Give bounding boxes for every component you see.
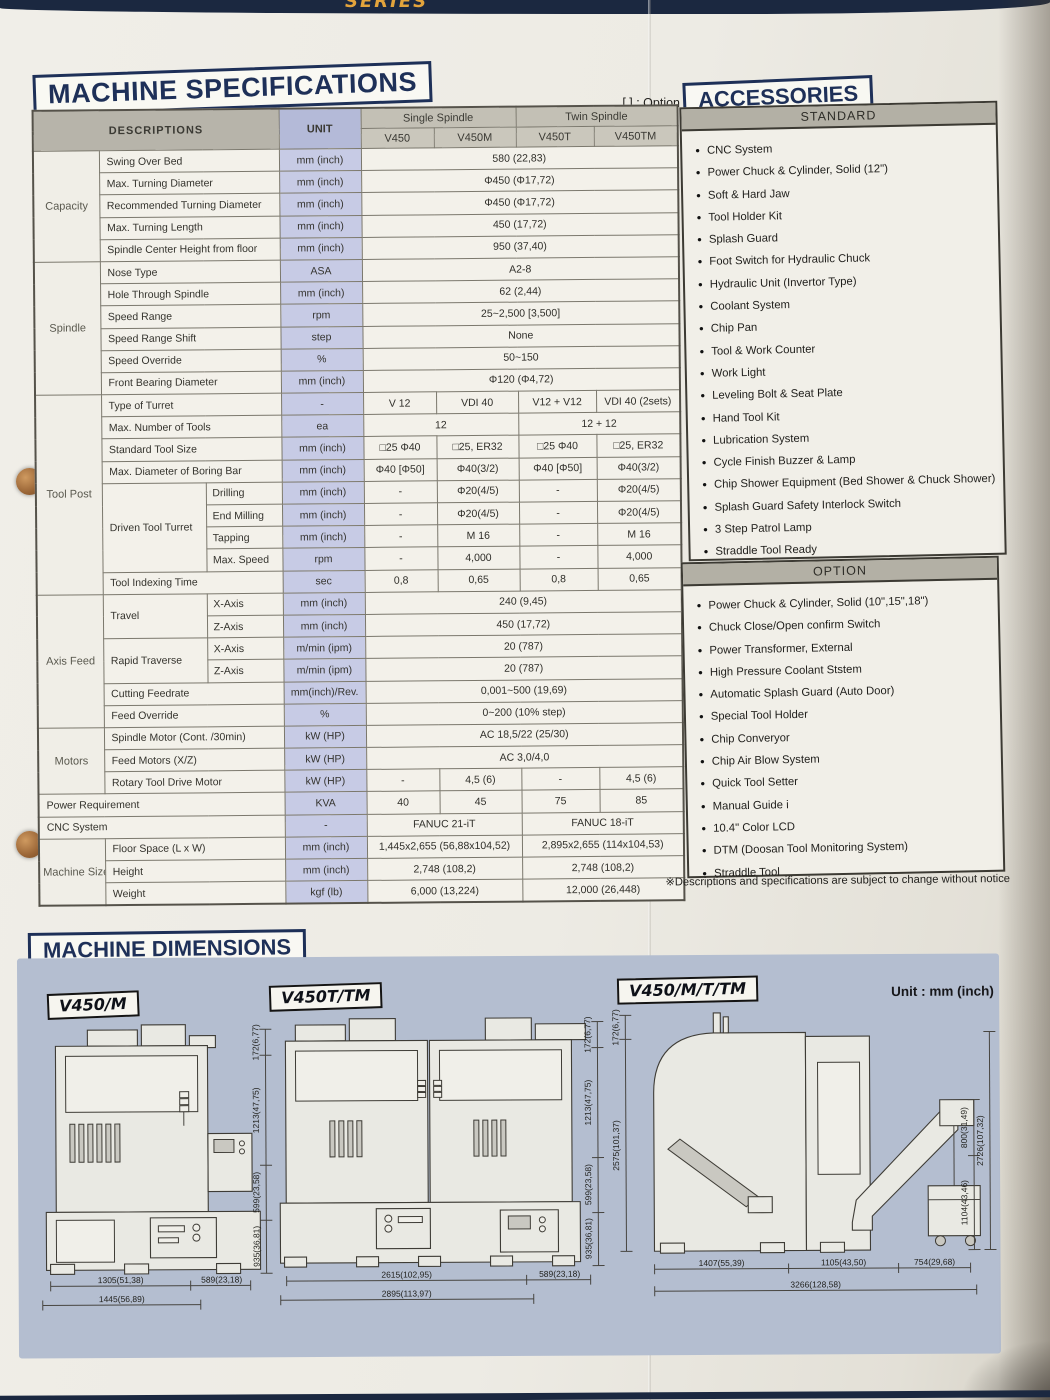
dimension-label: 800(31,49) xyxy=(959,1107,969,1148)
description-cell: Front Bearing Diameter xyxy=(101,371,281,395)
dimension-label: 2895(113,97) xyxy=(382,1288,432,1298)
dimension-label: 2575(101,37) xyxy=(611,1120,621,1171)
dimension-label: 935(36,81) xyxy=(251,1226,261,1267)
unit-cell: mm (inch) xyxy=(279,193,361,216)
dimension-label: 2615(102,95) xyxy=(381,1269,432,1279)
value-cell: - xyxy=(364,525,437,548)
description-cell: Travel xyxy=(103,594,207,639)
value-cell: - xyxy=(364,503,437,526)
value-cell: FANUC 18-iT xyxy=(522,811,684,835)
footnote: ※Descriptions and specifications are sub… xyxy=(610,872,1010,889)
unit-cell: mm (inch) xyxy=(279,171,361,194)
unit-cell: mm (inch) xyxy=(282,481,364,504)
value-cell: 0,65 xyxy=(438,569,520,592)
brochure-page: SERIES MACHINE SPECIFICATIONS [ ] : Opti… xyxy=(0,0,1050,1400)
description-cell: Nose Type xyxy=(100,260,280,284)
bottom-banner xyxy=(0,1390,1050,1400)
value-cell: Φ40(3/2) xyxy=(597,456,681,479)
value-cell: M 16 xyxy=(437,524,519,547)
value-cell: A2-8 xyxy=(362,257,679,282)
accessory-item-label: CNC System xyxy=(707,143,773,156)
accessory-item-label: High Pressure Coolant Ststem xyxy=(710,663,862,678)
bullet-icon: ● xyxy=(703,503,708,512)
description-cell: Hole Through Spindle xyxy=(100,282,280,306)
accessory-item-label: Automatic Splash Guard (Auto Door) xyxy=(710,685,894,701)
dimension-label: 172(6,77) xyxy=(582,1016,592,1053)
value-cell: □25 Φ40 xyxy=(363,436,436,459)
bullet-icon: ● xyxy=(700,757,705,766)
accessory-item-label: Tool Holder Kit xyxy=(708,210,782,224)
description-cell: Recommended Turning Diameter xyxy=(99,194,279,218)
dimension-label: 1213(47,75) xyxy=(583,1079,593,1125)
bullet-icon: ● xyxy=(698,302,703,311)
accessory-item-label: Cycle Finish Buzzer & Lamp xyxy=(713,454,855,469)
bullet-icon: ● xyxy=(697,646,702,655)
value-cell: - xyxy=(519,501,597,524)
unit-cell: % xyxy=(281,348,363,371)
machine-diagram-v450m: 172(6,77) 1213(47,75) 599(23,58) 935(36,… xyxy=(29,1015,281,1328)
bullet-icon: ● xyxy=(701,824,706,833)
accessory-item-label: Quick Tool Setter xyxy=(712,776,798,790)
bullet-icon: ● xyxy=(701,802,706,811)
unit-cell: mm (inch) xyxy=(285,858,367,881)
value-cell: 45 xyxy=(439,791,521,814)
unit-cell: kW (HP) xyxy=(284,770,366,793)
value-cell: 4,000 xyxy=(597,545,681,568)
column-header-single-spindle: Single Spindle xyxy=(361,107,516,129)
sub-description-cell: Drilling xyxy=(206,482,282,505)
value-cell: FANUC 21-iT xyxy=(367,813,522,837)
unit-cell: KVA xyxy=(285,792,367,815)
accessory-item-label: Power Chuck & Cylinder, Solid (12") xyxy=(707,163,888,179)
accessory-item-label: Soft & Hard Jaw xyxy=(708,188,790,202)
value-cell: Φ20(4/5) xyxy=(437,480,519,503)
option-accessories-list: ●Power Chuck & Cylinder, Solid (10",15",… xyxy=(683,589,1003,885)
value-cell: 1,445x2,655 (56,88x104,52) xyxy=(367,835,522,859)
bullet-icon: ● xyxy=(696,213,701,222)
description-cell: Weight xyxy=(105,881,285,905)
description-cell: Feed Override xyxy=(104,704,284,728)
dimension-label: 2726(107,32) xyxy=(975,1115,985,1166)
accessory-item-label: Chip Pan xyxy=(711,322,758,335)
unit-cell: mm (inch) xyxy=(282,526,364,549)
column-header-model: V450M xyxy=(434,127,516,148)
bullet-icon: ● xyxy=(702,480,707,489)
value-cell: 25~2,500 [3,500] xyxy=(362,301,679,326)
value-cell: Φ20(4/5) xyxy=(597,501,681,524)
unit-cell: mm (inch) xyxy=(280,282,362,305)
value-cell: 62 (2,44) xyxy=(362,279,679,304)
bullet-icon: ● xyxy=(698,280,703,289)
description-cell: Rotary Tool Drive Motor xyxy=(104,770,284,794)
value-cell: 240 (9,45) xyxy=(365,589,682,614)
accessory-item-label: Hand Tool Kit xyxy=(713,411,780,424)
accessory-item-label: Chuck Close/Open confirm Switch xyxy=(709,618,881,634)
bullet-icon: ● xyxy=(696,191,701,200)
bullet-icon: ● xyxy=(701,413,706,422)
accessory-item-label: Power Transformer, External xyxy=(709,641,852,656)
unit-cell: kW (HP) xyxy=(284,748,366,771)
value-cell: Φ40 [Φ50] xyxy=(519,457,597,480)
value-cell: □25, ER32 xyxy=(436,436,518,459)
machine-diagram-side-view: 172(6,77) 2575(101,37) 800(31,49) 1104(4… xyxy=(609,999,999,1319)
dimension-label: 1213(47,75) xyxy=(251,1087,261,1133)
bullet-icon: ● xyxy=(695,146,700,155)
description-cell: Spindle Center Height from floor xyxy=(100,238,280,262)
bullet-icon: ● xyxy=(700,391,705,400)
spec-table: DESCRIPTIONSUNITSingle SpindleTwin Spind… xyxy=(32,104,686,907)
bullet-icon: ● xyxy=(700,369,705,378)
sub-description-cell: Z-Axis xyxy=(207,659,283,682)
series-text: SERIES xyxy=(345,0,428,12)
accessory-item-label: Splash Guard xyxy=(709,233,778,246)
description-cell: Driven Tool Turret xyxy=(102,483,207,573)
unit-cell: ea xyxy=(281,415,363,438)
accessory-item-label: Tool & Work Counter xyxy=(711,343,815,357)
accessory-item-label: Chip Shower Equipment (Bed Shower & Chuc… xyxy=(714,473,996,491)
unit-cell: mm(inch)/Rev. xyxy=(284,681,366,704)
value-cell: 450 (17,72) xyxy=(365,612,682,637)
value-cell: 0,8 xyxy=(520,568,598,591)
unit-cell: rpm xyxy=(280,304,362,327)
dimension-label: 599(23,58) xyxy=(583,1164,593,1205)
bullet-icon: ● xyxy=(703,547,708,556)
column-header-model: V450T xyxy=(516,126,594,147)
spec-row: Weightkgf (lb)6,000 (13,224)12,000 (26,4… xyxy=(39,878,684,906)
accessory-item-label: Work Light xyxy=(712,367,766,380)
sub-description-cell: Max. Speed xyxy=(206,549,282,572)
accessory-item-label: Straddle Tool Ready xyxy=(715,544,817,558)
accessory-item-label: Foot Switch for Hydraulic Chuck xyxy=(709,253,870,268)
unit-cell: sec xyxy=(283,570,365,593)
accessory-item-label: Manual Guide i xyxy=(713,799,789,813)
unit-cell: mm (inch) xyxy=(283,592,365,615)
unit-cell: kgf (lb) xyxy=(285,881,367,904)
dimension-label: 589(23,18) xyxy=(201,1274,242,1284)
value-cell: None xyxy=(362,323,679,348)
value-cell: 12 + 12 xyxy=(518,412,680,436)
group-cell: Capacity xyxy=(33,151,100,263)
value-cell: 85 xyxy=(599,789,683,812)
description-cell: Speed Override xyxy=(101,349,281,373)
standard-header: STANDARD xyxy=(681,103,995,132)
bullet-icon: ● xyxy=(699,712,704,721)
dimension-label: 1104(43,46) xyxy=(959,1180,969,1225)
dimension-label: 1445(56,89) xyxy=(99,1294,145,1304)
value-cell: 6,000 (13,224) xyxy=(367,879,522,903)
description-cell: Speed Range xyxy=(100,304,280,328)
description-cell: Standard Tool Size xyxy=(101,438,281,462)
description-cell: Type of Turret xyxy=(101,393,281,417)
group-cell: Spindle xyxy=(34,262,101,396)
value-cell: - xyxy=(364,481,437,504)
description-cell: Cutting Feedrate xyxy=(104,682,284,706)
value-cell: 20 (787) xyxy=(365,634,682,659)
value-cell: 4,5 (6) xyxy=(599,767,683,790)
accessory-item-label: 3 Step Patrol Lamp xyxy=(715,522,812,536)
sub-description-cell: X-Axis xyxy=(207,593,283,616)
value-cell: Φ40(3/2) xyxy=(437,458,519,481)
sub-description-cell: Z-Axis xyxy=(207,615,283,638)
value-cell: 4,5 (6) xyxy=(439,768,521,791)
dimension-label: 589(23,18) xyxy=(539,1269,580,1279)
sub-description-cell: End Milling xyxy=(206,504,282,527)
bullet-icon: ● xyxy=(698,668,703,677)
bullet-icon: ● xyxy=(697,623,702,632)
dimension-label: 1105(43,50) xyxy=(821,1257,866,1267)
unit-cell: % xyxy=(284,703,366,726)
bullet-icon: ● xyxy=(702,846,707,855)
value-cell: 450 (17,72) xyxy=(361,212,678,237)
value-cell: V12 + V12 xyxy=(518,390,596,413)
unit-cell: step xyxy=(280,326,362,349)
unit-cell: mm (inch) xyxy=(282,459,364,482)
value-cell: Φ20(4/5) xyxy=(437,502,519,525)
description-cell: Floor Space (L x W) xyxy=(105,837,285,861)
dimension-label: 172(6,77) xyxy=(610,1009,620,1046)
accessory-item-label: Power Chuck & Cylinder, Solid (10",15",1… xyxy=(708,595,928,612)
unit-cell: m/min (ipm) xyxy=(283,659,365,682)
accessory-item-label: Splash Guard Safety Interlock Switch xyxy=(714,498,901,514)
bullet-icon: ● xyxy=(700,779,705,788)
accessory-item-label: Leveling Bolt & Seat Plate xyxy=(712,387,843,402)
unit-cell: kW (HP) xyxy=(284,725,366,748)
dimension-label: 1305(51,38) xyxy=(98,1275,144,1285)
value-cell: - xyxy=(519,546,597,569)
value-cell: □25, ER32 xyxy=(596,434,680,457)
bullet-icon: ● xyxy=(699,324,704,333)
value-cell: M 16 xyxy=(597,523,681,546)
value-cell: Φ120 (Φ4,72) xyxy=(363,368,680,393)
group-cell: Axis Feed xyxy=(37,594,104,728)
value-cell: V 12 xyxy=(363,392,436,415)
value-cell: 20 (787) xyxy=(365,656,682,681)
dimension-label: 599(23,58) xyxy=(251,1172,261,1213)
unit-cell: mm (inch) xyxy=(281,370,363,393)
unit-cell: mm (inch) xyxy=(283,614,365,637)
column-header-model: V450TM xyxy=(594,126,678,147)
description-cell: Power Requirement xyxy=(39,793,285,817)
dimension-label: 172(6,77) xyxy=(250,1024,260,1061)
option-accessories-box: OPTION ●Power Chuck & Cylinder, Solid (1… xyxy=(681,556,1006,879)
unit-cell: mm (inch) xyxy=(282,503,364,526)
value-cell: 2,895x2,655 (114x104,53) xyxy=(522,833,684,857)
unit-cell: m/min (ipm) xyxy=(283,637,365,660)
description-cell: Max. Number of Tools xyxy=(101,415,281,439)
value-cell: 580 (22,83) xyxy=(361,146,678,171)
value-cell: Φ450 (Φ17,72) xyxy=(361,168,678,193)
standard-accessories-list: ●CNC System●Power Chuck & Cylinder, Soli… xyxy=(682,134,1005,564)
value-cell: - xyxy=(519,524,597,547)
accessory-item-label: Hydraulic Unit (Invertor Type) xyxy=(710,275,857,290)
bullet-icon: ● xyxy=(701,436,706,445)
value-cell: AC 3,0/4,0 xyxy=(366,745,683,770)
option-header: OPTION xyxy=(683,558,997,587)
accessory-item-label: Special Tool Holder xyxy=(711,709,808,723)
value-cell: VDI 40 (2sets) xyxy=(596,390,680,413)
accessory-item-label: DTM (Doosan Tool Monitoring System) xyxy=(713,841,908,857)
description-cell: Height xyxy=(105,859,285,883)
bullet-icon: ● xyxy=(702,458,707,467)
sub-description-cell: X-Axis xyxy=(207,637,283,660)
value-cell: Φ20(4/5) xyxy=(597,478,681,501)
description-cell: Swing Over Bed xyxy=(99,149,279,173)
description-cell: Tool Indexing Time xyxy=(103,571,283,595)
accessory-item-label: Chip Air Blow System xyxy=(712,754,820,768)
column-header-twin-spindle: Twin Spindle xyxy=(516,105,678,127)
accessory-item-label: 10.4" Color LCD xyxy=(713,821,795,835)
value-cell: Φ450 (Φ17,72) xyxy=(361,190,678,215)
value-cell: - xyxy=(519,479,597,502)
dimension-label: 1407(55,39) xyxy=(699,1258,745,1268)
bullet-icon: ● xyxy=(703,525,708,534)
unit-cell: mm (inch) xyxy=(279,148,361,171)
unit-cell: - xyxy=(281,393,363,416)
value-cell: 50~150 xyxy=(363,345,680,370)
bullet-icon: ● xyxy=(698,690,703,699)
bullet-icon: ● xyxy=(697,257,702,266)
sub-description-cell: Tapping xyxy=(206,526,282,549)
model-plate-v450t-tm: V450T/TM xyxy=(269,982,383,1012)
value-cell: □25 Φ40 xyxy=(518,435,596,458)
unit-cell: - xyxy=(285,814,367,837)
value-cell: - xyxy=(366,769,439,792)
accessory-item-label: Lubrication System xyxy=(713,433,809,447)
value-cell: 12 xyxy=(363,413,518,437)
value-cell: 2,748 (108,2) xyxy=(367,857,522,881)
group-cell: Tool Post xyxy=(35,395,103,595)
dimension-label: 3266(128,58) xyxy=(790,1279,841,1289)
accessory-item-label: Chip Converyor xyxy=(711,732,790,746)
standard-accessories-box: STANDARD ●CNC System●Power Chuck & Cylin… xyxy=(679,101,1006,562)
column-header-unit: UNIT xyxy=(279,108,361,149)
dimension-label: 754(29,68) xyxy=(914,1257,955,1267)
column-header-descriptions: DESCRIPTIONS xyxy=(33,109,279,152)
unit-cell: mm (inch) xyxy=(281,437,363,460)
unit-cell: rpm xyxy=(282,548,364,571)
accessory-item-label: Coolant System xyxy=(710,299,790,313)
bullet-icon: ● xyxy=(697,235,702,244)
unit-cell: mm (inch) xyxy=(279,215,361,238)
description-cell: CNC System xyxy=(39,815,285,839)
bullet-icon: ● xyxy=(699,735,704,744)
value-cell: 0~200 (10% step) xyxy=(366,700,683,725)
column-header-model: V450 xyxy=(361,128,434,149)
bullet-icon: ● xyxy=(697,601,702,610)
group-cell: Motors xyxy=(38,728,105,795)
value-cell: 0,001~500 (19,69) xyxy=(366,678,683,703)
machine-diagram-v450t-tm: 172(6,77) 1213(47,75) 599(23,58) 935(36,… xyxy=(267,1007,614,1324)
description-cell: Spindle Motor (Cont. /30min) xyxy=(104,726,284,750)
value-cell: 950 (37,40) xyxy=(362,234,679,259)
unit-note: Unit : mm (inch) xyxy=(891,983,994,999)
value-cell: AC 18,5/22 (25/30) xyxy=(366,723,683,748)
unit-cell: ASA xyxy=(280,259,362,282)
value-cell: - xyxy=(521,768,599,791)
value-cell: 40 xyxy=(366,791,439,814)
page-edge-shadow xyxy=(998,0,1050,1400)
dimensions-panel: V450/M V450T/TM V450/M/T/TM Unit : mm (i… xyxy=(17,953,1001,1358)
description-cell: Speed Range Shift xyxy=(100,327,280,351)
value-cell: 0,65 xyxy=(598,567,682,590)
value-cell: VDI 40 xyxy=(436,391,518,414)
description-cell: Feed Motors (X/Z) xyxy=(104,748,284,772)
dimension-label: 935(36,81) xyxy=(583,1218,593,1259)
unit-cell: mm (inch) xyxy=(280,237,362,260)
top-banner: SERIES xyxy=(0,0,1050,14)
bullet-icon: ● xyxy=(696,168,701,177)
description-cell: Max. Turning Diameter xyxy=(99,171,279,195)
value-cell: 0,8 xyxy=(365,569,438,592)
group-cell: Machine Size xyxy=(39,839,106,907)
bullet-icon: ● xyxy=(699,347,704,356)
value-cell: 4,000 xyxy=(437,546,519,569)
description-cell: Rapid Traverse xyxy=(103,638,207,683)
description-cell: Max. Diameter of Boring Bar xyxy=(102,460,282,484)
description-cell: Max. Turning Length xyxy=(99,216,279,240)
unit-cell: mm (inch) xyxy=(285,836,367,859)
value-cell: - xyxy=(364,547,437,570)
value-cell: Φ40 [Φ50] xyxy=(364,458,437,481)
value-cell: 75 xyxy=(521,790,599,813)
